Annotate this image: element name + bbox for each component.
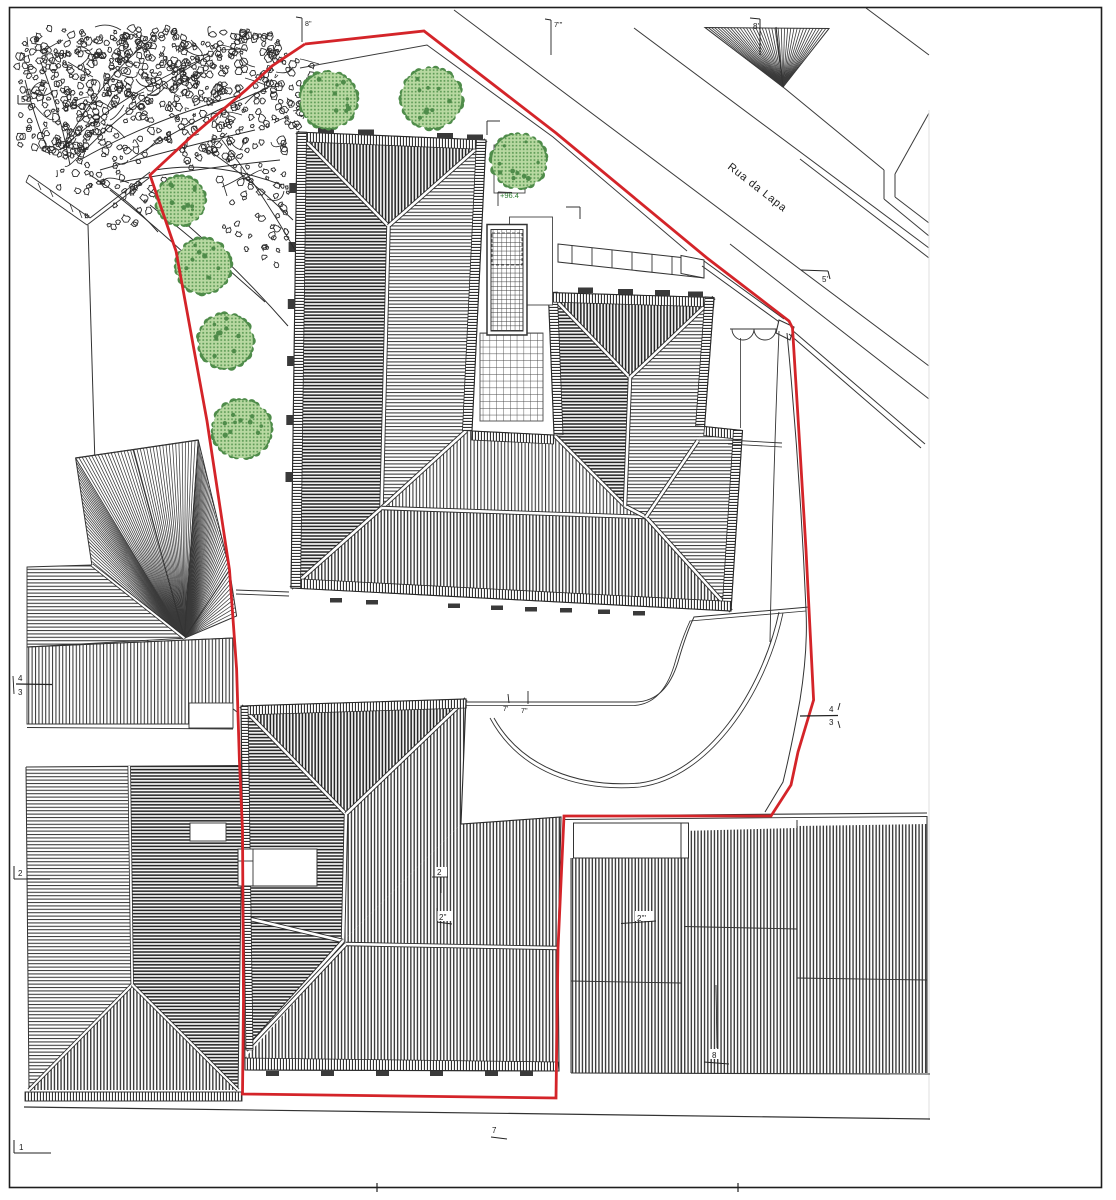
svg-text:4: 4 [829,705,834,714]
svg-text:2: 2 [437,868,442,877]
svg-text:7'': 7'' [521,708,528,715]
svg-text:8'': 8'' [305,21,312,28]
svg-text:5': 5' [822,275,828,284]
svg-text:2'': 2'' [439,913,447,922]
svg-text:3: 3 [829,718,834,727]
svg-text:7': 7' [503,706,508,713]
svg-text:5: 5 [21,95,26,104]
svg-text:4: 4 [18,674,23,683]
svg-text:8': 8' [753,22,759,31]
svg-text:3: 3 [18,688,23,697]
svg-text:8: 8 [712,1051,717,1060]
svg-text:2: 2 [18,869,23,878]
svg-text:1: 1 [19,1143,24,1152]
svg-text:7''': 7''' [554,20,563,29]
svg-text:7: 7 [492,1126,497,1135]
